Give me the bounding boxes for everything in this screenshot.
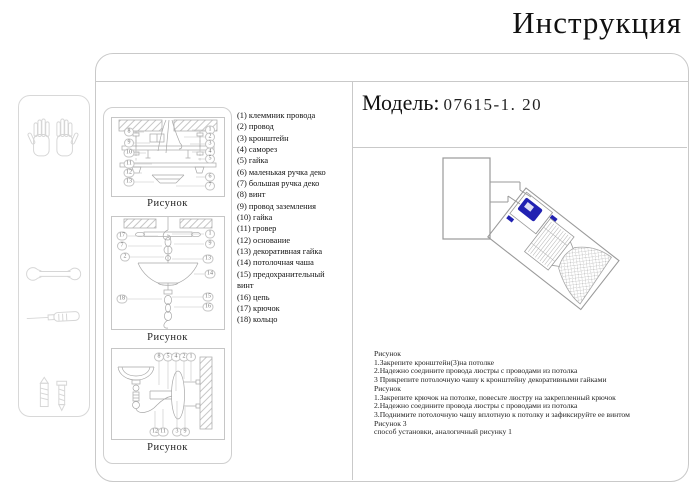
parts-list-item: (3) кронштейн <box>237 133 341 144</box>
figure-1-caption: Рисунок <box>104 198 231 209</box>
parts-list-item: (7) большая ручка деко <box>237 178 341 189</box>
callout-number: 18 <box>117 295 128 304</box>
callout-number: 15 <box>203 293 214 302</box>
wall-sconce-diagram <box>112 349 224 439</box>
parts-list-item: (4) саморез <box>237 144 341 155</box>
tools-panel <box>18 95 90 417</box>
callout-number: 17 <box>117 232 128 241</box>
leader-lines <box>155 360 191 428</box>
header-divider <box>95 81 688 82</box>
callout-number: 9 <box>205 240 215 249</box>
model-underline <box>353 147 687 148</box>
dowel-screw-icon <box>40 377 66 410</box>
parts-list-item: (10) гайка <box>237 212 341 223</box>
spotlight-product-drawing <box>438 150 633 315</box>
wall-mount-plate <box>443 158 490 239</box>
callout-number: 6 <box>205 173 215 182</box>
parts-list-item: (11) гровер <box>237 223 341 234</box>
parts-list-item: (15) предохранительный винт <box>237 269 341 292</box>
parts-list-item: (1) клеммник провода <box>237 110 341 121</box>
callout-number: 5 <box>205 155 215 164</box>
spotlight-drawing <box>438 150 633 315</box>
instruction-line: 3.Поднимите потолочную чашу вплотную к п… <box>374 411 684 420</box>
callout-number: 16 <box>203 303 214 312</box>
parts-list-item: (14) потолочная чаша <box>237 257 341 268</box>
parts-list-item: (18) кольцо <box>237 314 341 325</box>
page-title: Инструкция <box>512 5 682 41</box>
callout-number: 9 <box>180 428 190 437</box>
parts-list-item: (2) провод <box>237 121 341 132</box>
screwdriver-icon <box>27 311 80 322</box>
figures-panel: 89101112131234567 Рисунок <box>103 107 232 464</box>
callout-number: 8 <box>124 128 134 137</box>
parts-list-item: (12) основание <box>237 235 341 246</box>
parts-list-item: (13) декоративная гайка <box>237 246 341 257</box>
lamp-shade-mesh <box>547 234 615 304</box>
figure-3-box: 85421121139 <box>111 348 225 440</box>
callout-number: 2 <box>120 253 130 262</box>
callout-number: 14 <box>205 270 216 279</box>
callout-number: 7 <box>117 242 127 251</box>
callout-number: 13 <box>203 255 214 264</box>
leader-lines <box>134 130 205 186</box>
model-label: Модель: <box>362 90 439 115</box>
figure-2-box: 1772181913141516 <box>111 216 225 330</box>
callout-number: 11 <box>124 160 135 169</box>
figure-1-box: 89101112131234567 <box>111 117 225 197</box>
instruction-line: способ установки, аналогичный рисунку 1 <box>374 428 684 437</box>
callout-number: 7 <box>205 182 215 191</box>
wrench-icon <box>27 268 81 281</box>
parts-list-item: (8) винт <box>237 189 341 200</box>
figure-2-caption: Рисунок <box>104 332 231 343</box>
instruction-sheet-page: { "title": "Инструкция", "model": { "lab… <box>0 0 700 495</box>
callout-number: 1 <box>205 230 215 239</box>
tools-icons-drawing <box>19 96 87 414</box>
callout-number: 12 <box>124 169 135 178</box>
figure-3-caption: Рисунок <box>104 442 231 453</box>
parts-list: (1) клеммник провода(2) провод(3) кроншт… <box>237 110 341 326</box>
callout-number: 11 <box>158 428 169 437</box>
model-row: Модель: 07615-1. 20 <box>362 90 542 116</box>
model-number: 07615-1. 20 <box>443 95 542 114</box>
parts-list-item: (17) крючок <box>237 303 341 314</box>
callout-number: 9 <box>124 139 134 148</box>
parts-list-item: (6) маленькая ручка деко <box>237 167 341 178</box>
callout-number: 13 <box>124 178 135 187</box>
parts-list-item: (16) цепь <box>237 292 341 303</box>
callout-number: 1 <box>186 353 196 362</box>
section-divider <box>352 81 353 480</box>
parts-list-item: (9) провод заземления <box>237 201 341 212</box>
gloves-icon <box>27 119 78 156</box>
assembly-instructions: Рисунок1.Закрепите кронштейн(3)на потолк… <box>374 350 684 437</box>
instruction-line: 3 Прикрепите потолочную чашу к кронштейн… <box>374 376 684 385</box>
parts-list-item: (5) гайка <box>237 155 341 166</box>
lamp-head <box>488 188 619 310</box>
callout-number: 10 <box>124 149 135 158</box>
